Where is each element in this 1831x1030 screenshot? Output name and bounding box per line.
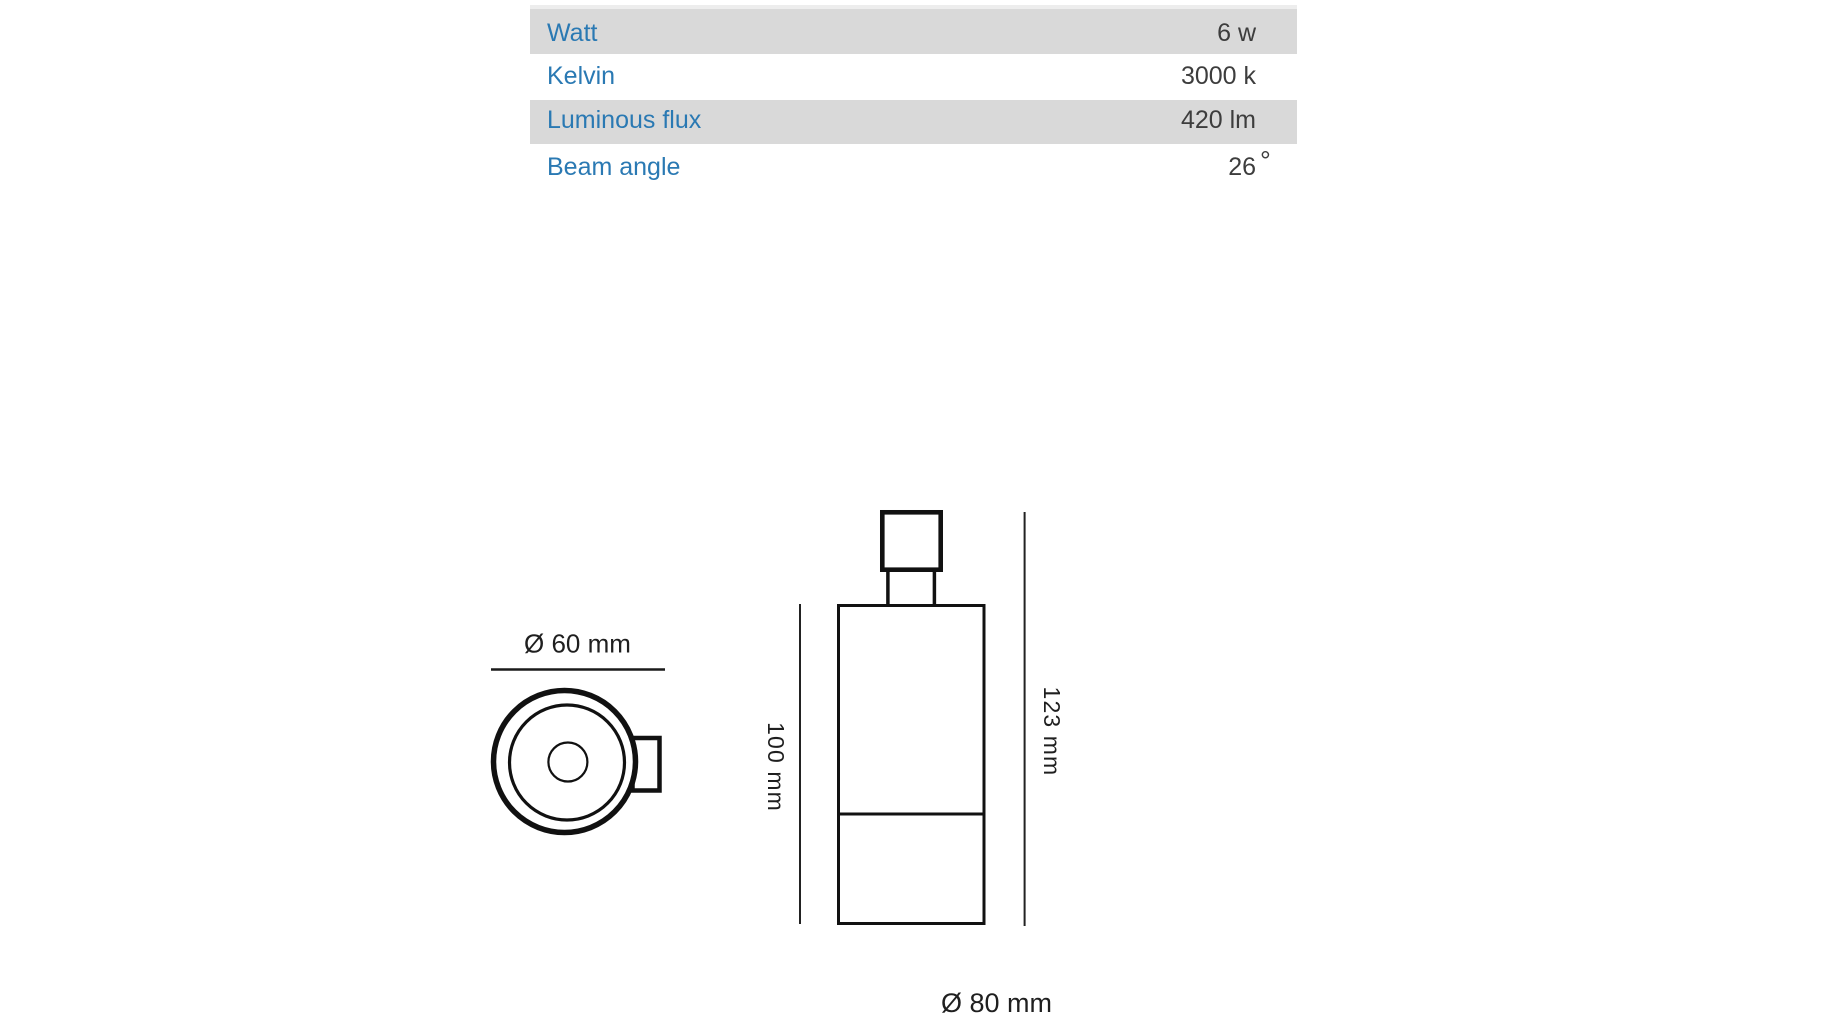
svg-text:123 mm: 123 mm [1039, 687, 1065, 777]
svg-text:100 mm: 100 mm [763, 722, 789, 812]
svg-text:Ø 80 mm: Ø 80 mm [941, 988, 1052, 1018]
svg-text:Ø 60 mm: Ø 60 mm [524, 629, 631, 659]
